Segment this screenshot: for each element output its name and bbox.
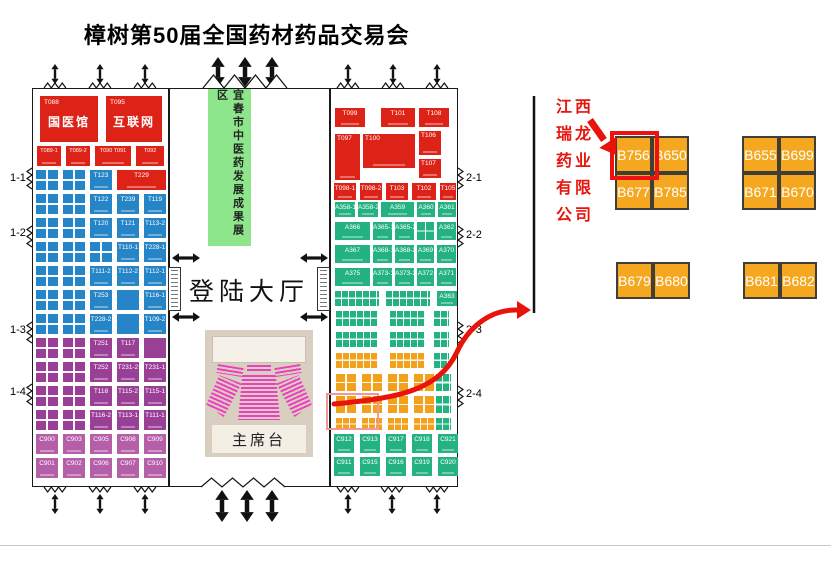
passage-sign-left xyxy=(168,267,181,311)
grid-booth xyxy=(63,242,85,262)
booth-B679: B679 xyxy=(616,262,653,299)
grid-booth xyxy=(417,222,434,240)
booth-C921: C921 xyxy=(438,434,458,453)
tcm-achievements-zone-label: 宜春市中医药发展成果展区 xyxy=(214,89,246,246)
booth-A359: A359 xyxy=(381,202,414,217)
strip-booth xyxy=(434,353,449,368)
grid-booth xyxy=(336,374,356,391)
booth-T111-1: T111-1 xyxy=(144,410,166,430)
booth-T101: T101 xyxy=(381,108,415,127)
booth-T231-1: T231-1 xyxy=(144,362,166,382)
strip-booth xyxy=(390,332,425,347)
booth xyxy=(144,338,166,358)
strip-booth xyxy=(434,311,449,326)
booth-T113-1: T113-1 xyxy=(117,410,139,430)
company-line: 瑞龙 xyxy=(556,121,594,148)
grid-booth xyxy=(63,194,85,214)
booth-A365-1: A365-1 xyxy=(373,222,392,240)
grid-booth xyxy=(388,374,408,391)
passage-sign-text xyxy=(320,270,327,308)
booth-C916: C916 xyxy=(386,457,406,476)
booth-A371: A371 xyxy=(437,268,456,286)
booth-B681: B681 xyxy=(743,262,780,299)
booth-C906: C906 xyxy=(90,458,112,478)
booth-A363: A363 xyxy=(437,291,457,306)
seat-block xyxy=(216,364,243,377)
booth-T099: T099 xyxy=(335,108,365,127)
grid-booth xyxy=(36,338,58,358)
booth-A373-1: A373-1 xyxy=(373,268,392,286)
row-label-1-2: 1-2 xyxy=(10,227,26,239)
strip-booth xyxy=(434,332,449,347)
grid-booth xyxy=(388,396,408,413)
booth-T253: T253 xyxy=(90,290,112,310)
booth-A368-1: A368-1 xyxy=(373,245,392,263)
seat-block xyxy=(276,374,313,418)
passage-sign-text xyxy=(171,270,178,308)
booth-C900: C900 xyxy=(36,434,58,454)
row-label-2-4: 2-4 xyxy=(466,388,482,400)
booth xyxy=(117,290,139,310)
booth-T110-1: T110-1 xyxy=(117,242,139,262)
booth-T108: T108 xyxy=(419,108,449,127)
booth-T103: T103 xyxy=(386,183,408,200)
company-name: 江西 瑞龙 药业 有限 公司 xyxy=(556,94,594,229)
booth-A375: A375 xyxy=(335,268,370,286)
grid-booth xyxy=(63,338,85,358)
booth-T102: T102 xyxy=(412,183,436,200)
strip-booth xyxy=(386,291,430,306)
strip-booth xyxy=(335,291,379,306)
booth-C907: C907 xyxy=(117,458,139,478)
booth-T095: T095互联网 xyxy=(106,96,162,142)
booth-b756-highlight xyxy=(610,131,659,180)
booth-T123: T123 xyxy=(90,170,112,190)
slide: { "title": "樟树第50届全国药材药品交易会", "colors": … xyxy=(0,0,831,561)
booth-A358-2: A358-2 xyxy=(358,202,378,217)
strip-booth xyxy=(390,353,425,368)
booth-C909: C909 xyxy=(144,434,166,454)
booth-T092: T092 xyxy=(136,146,164,166)
booth-B671: B671 xyxy=(742,173,779,210)
booth-C913: C913 xyxy=(360,434,380,453)
booth-T098-1: T098-1 xyxy=(334,183,356,200)
grid-booth xyxy=(36,386,58,406)
strip-booth xyxy=(436,396,451,413)
booth-T106: T106 xyxy=(419,131,441,155)
booth-T121: T121 xyxy=(117,218,139,238)
grid-booth xyxy=(63,386,85,406)
stage-label: 主席台 xyxy=(212,425,306,453)
booth-T089-1: T089-1 xyxy=(37,146,61,166)
grid-booth xyxy=(36,170,58,190)
booth-B682: B682 xyxy=(780,262,817,299)
booth-T122: T122 xyxy=(90,194,112,214)
seat-block xyxy=(274,364,301,377)
grid-booth xyxy=(36,314,58,334)
booth xyxy=(117,314,139,334)
grid-booth xyxy=(36,410,58,430)
strip-booth xyxy=(390,311,425,326)
grid-booth xyxy=(63,362,85,382)
booth-C911: C911 xyxy=(334,457,354,476)
grid-booth xyxy=(90,242,112,262)
booth-B655: B655 xyxy=(742,136,779,173)
booth-A369: A369 xyxy=(417,245,434,263)
booth-A373-2: A373-2 xyxy=(395,268,414,286)
booth-T118: T118 xyxy=(90,386,112,406)
booth-C902: C902 xyxy=(63,458,85,478)
grid-booth xyxy=(63,266,85,286)
page-title: 樟树第50届全国药材药品交易会 xyxy=(84,18,409,50)
grid-booth xyxy=(414,374,434,391)
strip-booth xyxy=(436,418,451,430)
slide-bottom-rule xyxy=(0,545,831,546)
booth-T229: T229 xyxy=(117,170,166,190)
booth-T107: T107 xyxy=(419,159,441,178)
grid-booth xyxy=(63,314,85,334)
strip-booth xyxy=(414,418,434,430)
booth-C912: C912 xyxy=(334,434,354,453)
booth-T115-1: T115-1 xyxy=(144,386,166,406)
booth-T251: T251 xyxy=(90,338,112,358)
row-label-1-3: 1-3 xyxy=(10,324,26,336)
booth-T239: T239 xyxy=(117,194,139,214)
booth-T113-2: T113-2 xyxy=(144,218,166,238)
row-label-2-2: 2-2 xyxy=(466,229,482,241)
booth-T112-1: T112-1 xyxy=(144,266,166,286)
detail-booth-group3: B679B680 xyxy=(616,262,690,299)
booth-C908: C908 xyxy=(117,434,139,454)
booth-A367: A367 xyxy=(335,245,370,263)
booth-C918: C918 xyxy=(412,434,432,453)
booth-T111-2: T111-2 xyxy=(90,266,112,286)
booth-C901: C901 xyxy=(36,458,58,478)
booth-C910: C910 xyxy=(144,458,166,478)
company-line: 有限 xyxy=(556,175,594,202)
booth-T119: T119 xyxy=(144,194,166,214)
strip-booth xyxy=(336,311,378,326)
booth-T098-2: T098-2 xyxy=(360,183,382,200)
company-line: 公司 xyxy=(556,202,594,229)
landing-hall-label: 登陆大厅 xyxy=(168,272,330,308)
booth-A370: A370 xyxy=(437,245,456,263)
seat-block xyxy=(204,374,241,418)
strip-booth xyxy=(336,353,378,368)
booth-T088: T088国医馆 xyxy=(40,96,98,142)
grid-booth xyxy=(414,396,434,413)
booth-T089-2: T089-2 xyxy=(66,146,90,166)
grid-booth xyxy=(36,242,58,262)
tcm-achievements-zone: 宜春市中医药发展成果展区 xyxy=(208,89,251,246)
booth-T115-2: T115-2 xyxy=(117,386,139,406)
grid-booth xyxy=(63,218,85,238)
booth-A360: A360 xyxy=(417,202,435,217)
booth-C919: C919 xyxy=(412,457,432,476)
seat-block xyxy=(238,375,280,420)
company-line: 江西 xyxy=(556,94,594,121)
booth-T252: T252 xyxy=(90,362,112,382)
booth-A358-1: A358-1 xyxy=(335,202,355,217)
booth-T097: T097 xyxy=(335,134,360,180)
booth-A366: A366 xyxy=(335,222,370,240)
booth-T120: T120 xyxy=(90,218,112,238)
passage-sign-right xyxy=(317,267,330,311)
booth-A361: A361 xyxy=(438,202,456,217)
booth-T231-2: T231-2 xyxy=(117,362,139,382)
grid-booth xyxy=(63,170,85,190)
stage-area: 主席台 xyxy=(205,330,313,457)
grid-booth xyxy=(36,194,58,214)
grid-booth xyxy=(36,218,58,238)
row-label-2-3: 2-3 xyxy=(466,324,482,336)
company-line: 药业 xyxy=(556,148,594,175)
grid-booth xyxy=(63,290,85,310)
booth-C920: C920 xyxy=(438,457,458,476)
booth-T117: T117 xyxy=(117,338,139,358)
row-label-1-4: 1-4 xyxy=(10,386,26,398)
booth-T109-2: T109-2 xyxy=(144,314,166,334)
strip-booth xyxy=(388,418,408,430)
strip-booth xyxy=(336,332,378,347)
row-label-2-1: 2-1 xyxy=(466,172,482,184)
booth-B699: B699 xyxy=(779,136,816,173)
booth-C905: C905 xyxy=(90,434,112,454)
grid-booth xyxy=(36,266,58,286)
booth-B670: B670 xyxy=(779,173,816,210)
booth-A372: A372 xyxy=(417,268,434,286)
booth-A365-2: A365-2 xyxy=(395,222,414,240)
detail-booth-group4: B681B682 xyxy=(743,262,817,299)
booth-T228-2: T228-2 xyxy=(90,314,112,334)
booth-T116-1: T116-1 xyxy=(144,290,166,310)
booth-T090 T091: T090 T091 xyxy=(95,146,131,166)
map-highlight-rect xyxy=(326,393,379,430)
booth-B680: B680 xyxy=(653,262,690,299)
grid-booth xyxy=(63,410,85,430)
booth-T116-2: T116-2 xyxy=(90,410,112,430)
booth-T112-2: T112-2 xyxy=(117,266,139,286)
booth-T100: T100 xyxy=(363,134,415,168)
grid-booth xyxy=(36,290,58,310)
booth-C915: C915 xyxy=(360,457,380,476)
grid-booth xyxy=(362,374,382,391)
auditorium-seats xyxy=(210,366,308,422)
booth-A368-2: A368-2 xyxy=(395,245,414,263)
booth-C917: C917 xyxy=(386,434,406,453)
booth-C903: C903 xyxy=(63,434,85,454)
grid-booth xyxy=(36,362,58,382)
booth-A362: A362 xyxy=(437,222,456,240)
row-label-1-1: 1-1 xyxy=(10,172,26,184)
strip-booth xyxy=(436,374,451,391)
seat-block xyxy=(247,365,271,373)
detail-booth-group2: B655B699B671B670 xyxy=(742,136,816,210)
stage-platform xyxy=(212,336,306,363)
booth-T105: T105 xyxy=(440,183,456,200)
booth-T228-1: T228-1 xyxy=(144,242,166,262)
